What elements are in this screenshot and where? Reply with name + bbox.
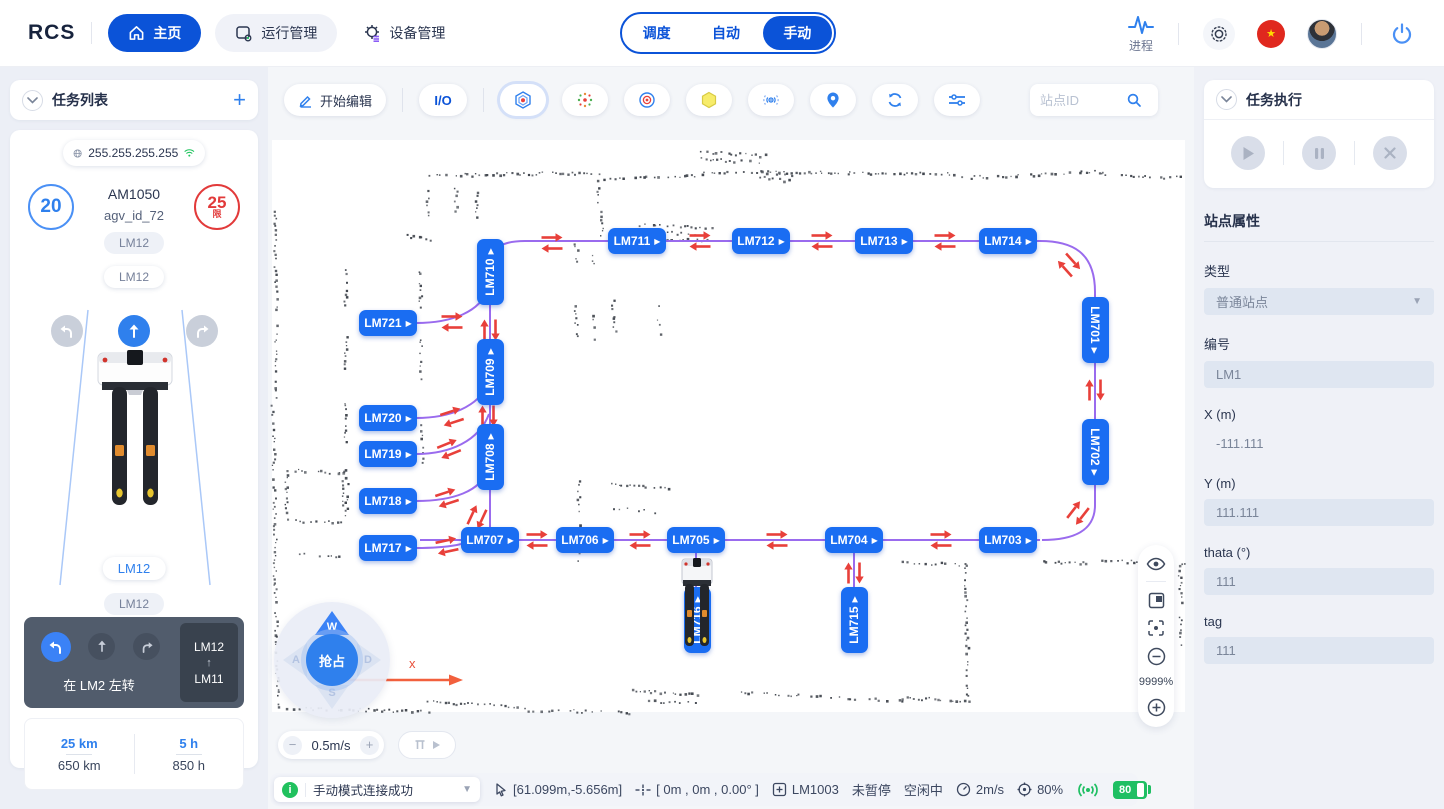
plus-square-icon [772,782,787,797]
station-properties: 站点属性 类型普通站点▼编号LM1X (m)-111.111Y (m)111.1… [1204,211,1434,664]
type-field[interactable]: 普通站点▼ [1204,288,1434,315]
concentric-target-icon [637,90,657,110]
top-navbar: RCS 主页 运行管理 [0,0,1444,67]
map-station-lm719[interactable]: LM719▶ [359,441,417,467]
map-station-lm701[interactable]: LM701▶ [1082,297,1109,363]
next-station-chip: LM12 [104,593,164,615]
pause-state: 未暂停 [852,780,891,799]
crosshair-icon [635,783,651,797]
station-search [1030,84,1158,116]
pause-icon [1314,147,1325,160]
y-field-label: Y (m) [1204,476,1434,491]
mode-dispatch[interactable]: 调度 [622,23,691,43]
station-chip: LM12 [104,266,164,288]
power-icon [1389,21,1415,47]
map-station-lm717[interactable]: LM717▶ [359,535,417,561]
battery-icon: 80 [1113,781,1147,799]
navbar-right: 进程 ★ [1128,0,1444,67]
vehicle-model: AM1050 [10,186,258,202]
theta-field-label: thata (°) [1204,545,1434,560]
layer-target-button[interactable] [624,84,670,116]
refresh-button[interactable] [872,84,918,116]
waveform-icon [1128,14,1154,36]
layer-pointcloud-button[interactable] [562,84,608,116]
robot-pose: [ 0m , 0m , 0.00° ] [635,782,759,797]
route-arrow-icon: ↑ [206,657,212,669]
station-properties-fields: 类型普通站点▼编号LM1X (m)-111.111Y (m)111.111tha… [1204,261,1434,664]
map-station-lm720[interactable]: LM720▶ [359,405,417,431]
layer-stations-button[interactable] [500,84,546,116]
map-station-lm710[interactable]: LM710▶ [477,239,504,305]
tag-field-label: tag [1204,614,1434,629]
minus-circle-icon [1147,647,1166,666]
message-divider [305,783,306,797]
cursor-icon [493,782,508,797]
scatter-dots-icon [575,90,595,110]
vehicle-id: agv_id_72 [10,208,258,223]
nav-turn-right-button[interactable] [133,633,160,660]
turn-right-icon [194,324,210,338]
map-station-lm703[interactable]: LM703▶ [979,527,1037,553]
task-execution-title: 任务执行 [1246,90,1422,110]
yellow-hexagon-icon [699,90,719,110]
map-view-tools: 9999% [1138,545,1174,727]
start-edit-label: 开始编辑 [320,91,372,110]
mode-manual[interactable]: 手动 [763,16,832,50]
map-station-lm704[interactable]: LM704▶ [825,527,883,553]
idle-state: 空闲中 [904,780,943,799]
navbar-divider [1178,23,1179,45]
locate-button[interactable] [810,84,856,116]
battery-status: 80 [1113,781,1151,799]
joystick-right-button[interactable]: D [357,643,381,677]
turn-right-button[interactable] [186,315,218,347]
nav-turn-left-button[interactable] [41,632,71,662]
zoom-level: 9999% [1139,676,1173,688]
map-toolbar: 开始编辑 I/O [284,84,980,116]
navbar-divider [1361,23,1362,45]
home-icon [128,25,145,41]
localization-status: 80% [1017,782,1063,797]
route-to: LM11 [194,672,223,686]
current-station: LM1003 [772,782,839,797]
connection-message: 手动模式连接成功 [313,780,455,799]
globe-icon [73,147,82,160]
process-label: 进程 [1129,37,1153,54]
station-properties-title: 站点属性 [1204,211,1434,242]
close-icon [1384,147,1396,159]
nav-item-label: 主页 [153,23,181,43]
plus-circle-icon [1147,698,1166,717]
navigation-panel: 在 LM2 左转 LM12 ↑ LM11 [24,617,244,708]
toolbar-divider [402,88,403,112]
center-focus-button[interactable] [1147,619,1165,637]
target-icon [1017,782,1032,797]
speed-decrease-button[interactable]: − [283,736,302,755]
seize-control-button[interactable]: 抢占 [306,634,358,686]
task-pause-button[interactable] [1302,136,1336,170]
chevron-down-icon: ▼ [462,784,472,795]
refresh-icon [886,91,904,109]
minimap-button[interactable] [1148,592,1165,609]
minimap-icon [1148,592,1165,609]
io-button[interactable]: I/O [419,84,467,116]
station-chip: LM12 [104,232,164,254]
joystick-forward-button[interactable]: W [315,611,349,635]
map-area[interactable] [268,67,1194,809]
map-station-lm721[interactable]: LM721▶ [359,310,417,336]
task-list-header: 任务列表 + [10,80,258,120]
turn-left-icon [48,640,64,654]
right-sidebar: 任务执行 [1194,67,1444,809]
app-logo: RCS [28,21,75,45]
add-task-button[interactable]: + [233,90,246,110]
speed-increase-button[interactable]: + [360,736,379,755]
battery-percent: 80 [1113,784,1137,796]
play-small-icon [432,740,441,750]
gauge-icon [956,782,971,797]
monitor-gear-icon [235,25,253,42]
type-field-label: 类型 [1204,261,1434,280]
turn-right-icon [140,641,154,653]
search-icon[interactable] [1126,92,1142,108]
speed-status: 2m/s [956,782,1004,797]
map-station-lm708[interactable]: LM708▶ [477,424,504,490]
chevron-down-icon [27,97,38,104]
collapse-task-list-button[interactable] [22,90,43,111]
task-play-button[interactable] [1231,136,1265,170]
signal-icon [1076,782,1100,798]
mileage-stat: 25 km 650 km [25,719,134,789]
direction-buttons [10,315,258,349]
map-station-lm714[interactable]: LM714▶ [979,228,1037,254]
layer-zone-button[interactable] [686,84,732,116]
hours-stat: 5 h 850 h [135,719,244,789]
manual-speed-controls: − 0.5m/s + [278,731,456,759]
odometer-card: 25 km 650 km 5 h 850 h [24,718,244,790]
turn-left-icon [59,324,75,338]
signal-status [1076,782,1100,798]
nav-item-label: 运行管理 [261,23,317,43]
visibility-button[interactable] [1146,557,1166,571]
route-from: LM12 [194,640,224,654]
radar-scan-icon [761,90,781,110]
play-icon [1242,146,1255,161]
cursor-coordinates: [61.099m,-5.656m] [493,782,622,797]
gear-icon [363,24,381,42]
nav-hint-text: 在 LM2 左转 [24,675,174,694]
x-field: -111.111 [1204,430,1434,457]
joystick-back-button[interactable]: S [315,685,349,709]
map-station-lm706[interactable]: LM706▶ [556,527,614,553]
io-label: I/O [434,93,451,108]
sliders-icon [947,91,967,109]
pencil-icon [298,93,313,108]
power-button[interactable] [1386,18,1418,50]
ip-address: 255.255.255.255 [88,146,178,160]
mode-auto[interactable]: 自动 [691,23,760,43]
vehicle-card: 255.255.255.255 20 25 限 AM1050 agv_id_72… [10,130,258,768]
focus-icon [1147,619,1165,637]
speed-control: − 0.5m/s + [278,731,384,759]
x-field-label: X (m) [1204,407,1434,422]
nav-item-label: 设备管理 [389,23,445,43]
map-station-lm715[interactable]: LM715▶ [841,587,868,653]
location-pin-icon [824,91,842,109]
task-execution-controls [1204,120,1434,186]
task-execution-card: 任务执行 [1204,80,1434,188]
controls-divider [1354,141,1355,165]
zoom-in-button[interactable] [1147,698,1166,717]
tools-divider [1146,581,1166,582]
left-sidebar: 任务列表 + [0,67,268,809]
map-station-lm711[interactable]: LM711▶ [608,228,666,254]
map-station-lm716[interactable]: LM716▶ [684,587,711,653]
task-cancel-button[interactable] [1373,136,1407,170]
nav-item-devices[interactable]: 设备管理 [343,14,465,52]
task-list-title: 任务列表 [52,90,224,110]
map-station-lm718[interactable]: LM718▶ [359,488,417,514]
process-button[interactable]: 进程 [1128,14,1154,54]
toolbar-divider [483,88,484,112]
station-search-input[interactable] [1040,93,1126,108]
controls-divider [1283,141,1284,165]
route-segment: LM12 ↑ LM11 [180,623,238,702]
flag-star-icon: ★ [1266,27,1276,40]
manual-joystick: W A D S 抢占 [274,602,390,718]
turn-left-button[interactable] [51,315,83,347]
arrow-up-icon [128,324,140,339]
collapse-task-exec-button[interactable] [1216,89,1237,110]
nav-item-home[interactable]: 主页 [108,14,201,52]
connection-message-dropdown[interactable]: i 手动模式连接成功 ▼ [274,777,480,802]
code-field-label: 编号 [1204,334,1434,353]
nav-item-operations[interactable]: 运行管理 [215,14,337,52]
map-station-lm712[interactable]: LM712▶ [732,228,790,254]
wifi-icon [184,147,195,159]
theta-field[interactable]: 111 [1204,568,1434,595]
map-station-lm707[interactable]: LM707▶ [461,527,519,553]
sun-icon [1209,24,1229,44]
status-bar: i 手动模式连接成功 ▼ [61.099m,-5.656m] [ 0m , 0m… [270,773,1138,806]
y-field[interactable]: 111.111 [1204,499,1434,526]
hexagon-node-icon [513,90,533,110]
navbar-divider [91,22,92,44]
current-station-chip: LM12 [103,557,166,580]
user-avatar[interactable] [1307,19,1337,49]
arrow-up-icon [97,640,107,653]
language-button[interactable]: ★ [1257,20,1285,48]
eye-icon [1146,557,1166,571]
rcs-app: LM710▶LM709▶LM708▶LM721▶LM720▶LM719▶LM71… [0,0,1444,809]
filter-settings-button[interactable] [934,84,980,116]
code-field[interactable]: LM1 [1204,361,1434,388]
map-station-lm702[interactable]: LM702▶ [1082,419,1109,485]
tag-field[interactable]: 111 [1204,637,1434,664]
layer-lidar-button[interactable] [748,84,794,116]
task-execution-header: 任务执行 [1204,80,1434,120]
theme-toggle-button[interactable] [1203,18,1235,50]
map-station-lm705[interactable]: LM705▶ [667,527,725,553]
fork-icon [413,738,427,752]
fork-action-button[interactable] [398,731,456,759]
map-station-lm709[interactable]: LM709▶ [477,339,504,405]
zoom-out-button[interactable] [1147,647,1166,666]
map-station-lm713[interactable]: LM713▶ [855,228,913,254]
info-icon: i [282,782,298,798]
go-straight-button[interactable] [118,315,150,347]
chevron-down-icon [1221,96,1232,103]
nav-straight-button[interactable] [88,633,115,660]
joystick-left-button[interactable]: A [283,643,307,677]
start-edit-button[interactable]: 开始编辑 [284,84,386,116]
mode-toggle: 调度 自动 手动 [620,12,836,54]
vehicle-ip[interactable]: 255.255.255.255 [63,140,205,166]
speed-value: 0.5m/s [311,738,350,753]
